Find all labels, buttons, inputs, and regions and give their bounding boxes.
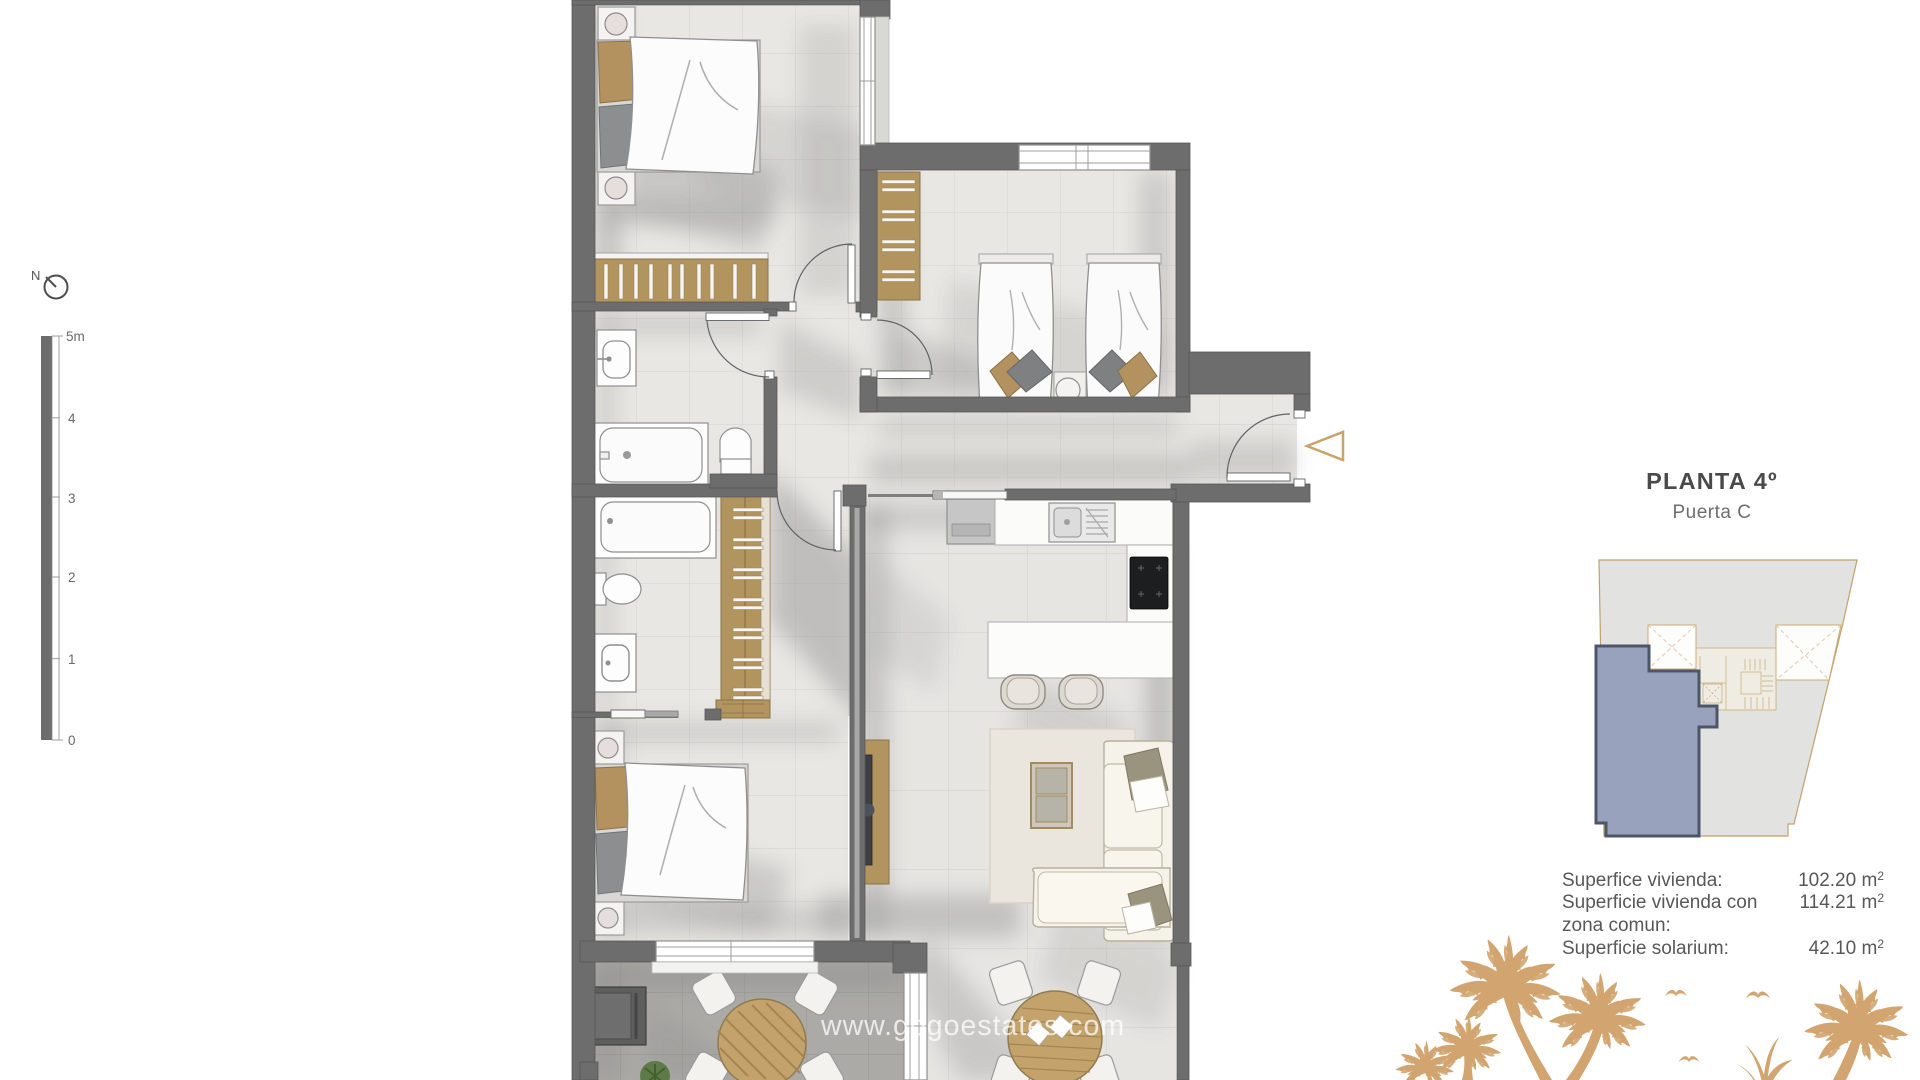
svg-text:Superfice vivienda:: Superfice vivienda: [1562,870,1723,891]
svg-text:2: 2 [68,570,76,585]
svg-text:4: 4 [68,411,76,426]
svg-text:0: 0 [68,733,76,748]
svg-text:zona comun:: zona comun: [1562,915,1671,936]
svg-text:www.gogoestates.com: www.gogoestates.com [820,1010,1125,1042]
svg-text:1: 1 [68,652,76,667]
svg-text:Superficie solarium:: Superficie solarium: [1562,938,1729,959]
svg-text:42.10 m2: 42.10 m2 [1809,937,1885,959]
svg-text:N: N [31,268,40,283]
svg-text:102.20 m2: 102.20 m2 [1798,869,1884,891]
svg-text:PLANTA 4º: PLANTA 4º [1646,468,1778,494]
svg-text:Puerta C: Puerta C [1673,502,1752,523]
svg-text:5m: 5m [66,329,85,344]
svg-text:Superficie vivienda con: Superficie vivienda con [1562,892,1757,913]
svg-text:3: 3 [68,491,76,506]
svg-text:114.21 m2: 114.21 m2 [1800,891,1885,913]
